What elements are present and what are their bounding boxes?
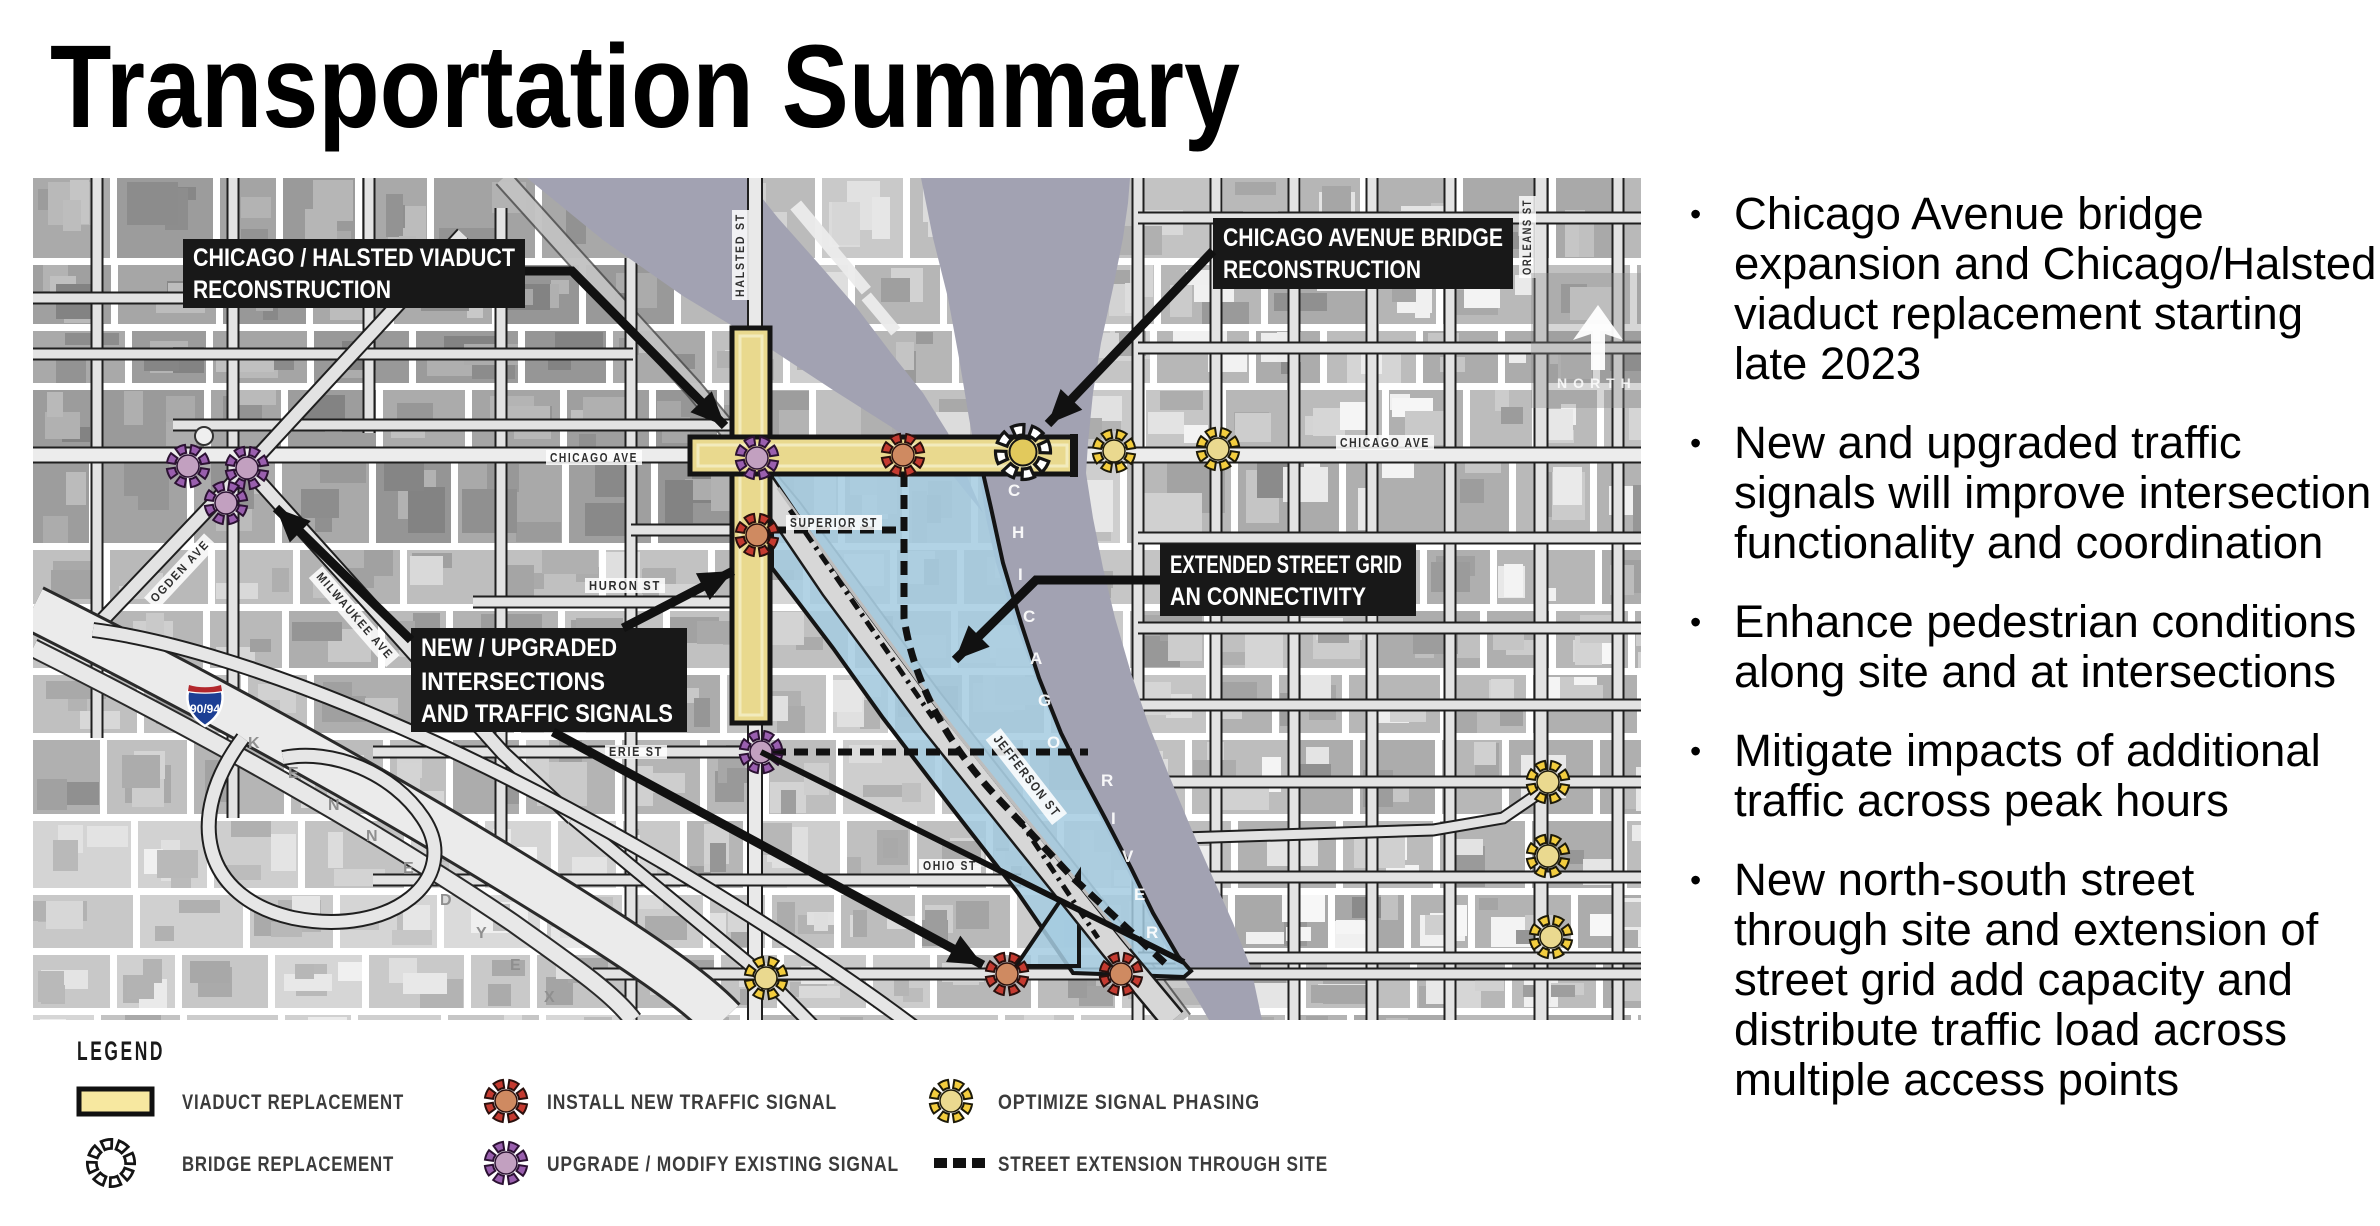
svg-text:CHICAGO AVE: CHICAGO AVE: [550, 450, 638, 465]
svg-text:R: R: [606, 1052, 618, 1069]
svg-text:AND TRAFFIC SIGNALS: AND TRAFFIC SIGNALS: [421, 700, 673, 728]
svg-text:NORTH: NORTH: [1557, 375, 1637, 391]
svg-text:CHICAGO / HALSTED VIADUCT: CHICAGO / HALSTED VIADUCT: [193, 244, 515, 272]
svg-text:CHICAGO AVENUE BRIDGE: CHICAGO AVENUE BRIDGE: [1223, 224, 1503, 252]
svg-text:O: O: [1047, 733, 1060, 752]
svg-text:BRIDGE REPLACEMENT: BRIDGE REPLACEMENT: [182, 1153, 394, 1176]
svg-text:HALSTED ST: HALSTED ST: [733, 213, 747, 297]
svg-text:Y: Y: [476, 925, 487, 942]
svg-text:STREET EXTENSION THROUGH SITE: STREET EXTENSION THROUGH SITE: [998, 1153, 1328, 1176]
svg-text:E: E: [403, 860, 414, 877]
svg-text:AN CONNECTIVITY: AN CONNECTIVITY: [1170, 583, 1366, 611]
svg-text:INTERSECTIONS: INTERSECTIONS: [421, 668, 605, 696]
svg-text:SUPERIOR ST: SUPERIOR ST: [790, 516, 878, 530]
svg-text:CHICAGO AVE: CHICAGO AVE: [1340, 435, 1430, 450]
svg-text:K: K: [248, 735, 260, 752]
svg-text:X: X: [544, 989, 555, 1006]
svg-text:R: R: [1146, 923, 1158, 942]
svg-text:H: H: [1012, 523, 1024, 542]
svg-text:E: E: [1134, 885, 1145, 904]
svg-text:A: A: [1030, 649, 1042, 668]
svg-text:OPTIMIZE SIGNAL PHASING: OPTIMIZE SIGNAL PHASING: [998, 1091, 1260, 1114]
svg-text:E: E: [288, 765, 299, 782]
svg-text:V: V: [1122, 847, 1134, 866]
svg-text:I: I: [1111, 809, 1116, 828]
svg-text:N: N: [328, 797, 340, 814]
svg-text:ERIE ST: ERIE ST: [609, 744, 663, 759]
svg-text:C: C: [1008, 481, 1020, 500]
svg-text:LEGEND: LEGEND: [77, 1036, 165, 1066]
svg-text:EXTENDED STREET GRID: EXTENDED STREET GRID: [1170, 551, 1402, 579]
svg-text:ORLEANS ST: ORLEANS ST: [1520, 199, 1534, 275]
svg-text:VIADUCT REPLACEMENT: VIADUCT REPLACEMENT: [182, 1091, 404, 1114]
svg-text:G: G: [1038, 691, 1051, 710]
svg-text:E: E: [510, 957, 521, 974]
svg-text:NEW / UPGRADED: NEW / UPGRADED: [421, 634, 617, 662]
svg-text:R: R: [1101, 771, 1113, 790]
svg-text:HURON ST: HURON ST: [589, 578, 661, 593]
svg-text:D: D: [440, 892, 452, 909]
svg-text:I: I: [1018, 565, 1023, 584]
svg-text:C: C: [1023, 607, 1035, 626]
svg-text:RECONSTRUCTION: RECONSTRUCTION: [1223, 256, 1421, 284]
svg-text:RECONSTRUCTION: RECONSTRUCTION: [193, 276, 391, 304]
svg-text:INSTALL NEW TRAFFIC SIGNAL: INSTALL NEW TRAFFIC SIGNAL: [547, 1091, 837, 1114]
svg-text:90/94: 90/94: [190, 702, 220, 716]
svg-text:UPGRADE / MODIFY EXISTING SIGN: UPGRADE / MODIFY EXISTING SIGNAL: [547, 1153, 899, 1176]
svg-text:OHIO ST: OHIO ST: [923, 858, 977, 873]
svg-text:P: P: [576, 1021, 587, 1038]
svg-text:N: N: [366, 828, 378, 845]
